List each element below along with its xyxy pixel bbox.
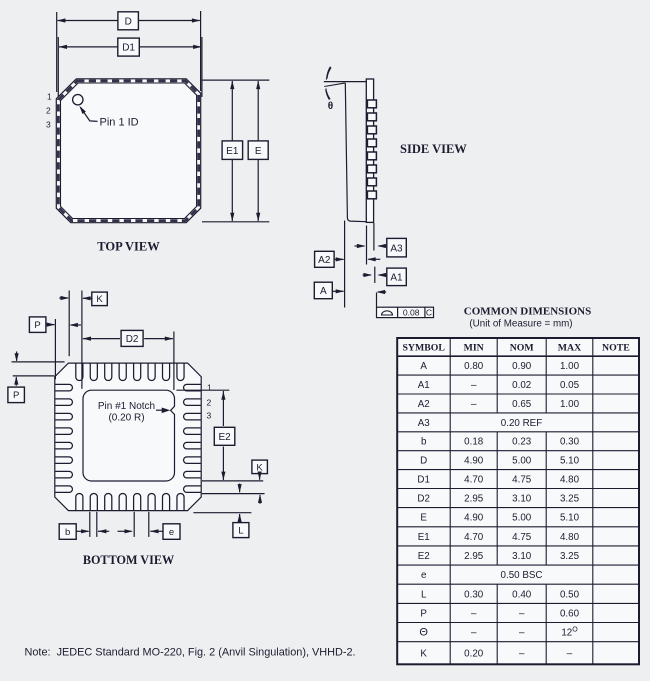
svg-text:e: e — [421, 570, 427, 581]
svg-text:3.25: 3.25 — [560, 551, 580, 562]
svg-text:A2: A2 — [418, 399, 430, 410]
svg-text:0.20 REF: 0.20 REF — [501, 418, 542, 429]
svg-text:0.30: 0.30 — [560, 437, 580, 448]
svg-text:–: – — [471, 399, 477, 410]
svg-text:1: 1 — [207, 383, 212, 393]
svg-text:4.80: 4.80 — [560, 475, 580, 486]
svg-text:K: K — [420, 649, 427, 660]
svg-text:5.10: 5.10 — [560, 513, 580, 524]
svg-text:–: – — [519, 649, 525, 660]
svg-text:SIDE VIEW: SIDE VIEW — [400, 142, 467, 156]
svg-text:1: 1 — [47, 92, 52, 102]
svg-text:L: L — [238, 526, 243, 537]
svg-text:A1: A1 — [390, 272, 403, 283]
svg-text:0.65: 0.65 — [512, 399, 532, 410]
svg-text:D2: D2 — [417, 494, 430, 505]
svg-text:4.70: 4.70 — [464, 475, 484, 486]
svg-text:A1: A1 — [418, 380, 430, 391]
svg-text:E2: E2 — [418, 551, 430, 562]
svg-text:4.90: 4.90 — [464, 456, 484, 467]
svg-text:Pin 1 ID: Pin 1 ID — [100, 117, 139, 129]
svg-text:TOP VIEW: TOP VIEW — [97, 240, 160, 254]
svg-text:0.02: 0.02 — [512, 380, 531, 391]
svg-text:0.30: 0.30 — [464, 589, 484, 600]
svg-text:BOTTOM VIEW: BOTTOM VIEW — [83, 553, 174, 567]
svg-text:A: A — [420, 361, 427, 372]
svg-text:2: 2 — [207, 398, 212, 408]
svg-text:E2: E2 — [218, 432, 231, 443]
svg-text:L: L — [421, 589, 427, 600]
svg-text:0.18: 0.18 — [464, 437, 484, 448]
svg-text:0.20: 0.20 — [464, 649, 484, 660]
svg-text:D: D — [125, 16, 132, 27]
svg-text:3: 3 — [46, 120, 51, 130]
svg-text:MIN: MIN — [464, 343, 484, 354]
svg-text:–: – — [519, 628, 525, 639]
svg-text:0.50: 0.50 — [560, 589, 580, 600]
svg-text:(Unit of Measure = mm): (Unit of Measure = mm) — [469, 319, 572, 330]
svg-text:3.10: 3.10 — [512, 494, 532, 505]
svg-text:–: – — [471, 380, 477, 391]
svg-text:b: b — [65, 527, 70, 538]
svg-text:COMMON DIMENSIONS: COMMON DIMENSIONS — [464, 306, 591, 318]
svg-text:3: 3 — [207, 411, 212, 421]
svg-text:5.10: 5.10 — [560, 456, 580, 467]
svg-text:D: D — [420, 456, 427, 467]
svg-text:e: e — [169, 527, 174, 538]
svg-text:E1: E1 — [226, 146, 239, 157]
svg-text:SYMBOL: SYMBOL — [402, 343, 445, 354]
svg-text:Pin #1 Notch: Pin #1 Notch — [98, 401, 155, 412]
svg-text:Θ: Θ — [419, 627, 428, 639]
svg-text:4.70: 4.70 — [464, 532, 484, 543]
svg-text:C: C — [426, 308, 432, 318]
svg-text:P: P — [34, 320, 40, 331]
svg-text:0.40: 0.40 — [512, 589, 532, 600]
svg-text:NOTE: NOTE — [602, 343, 630, 354]
svg-text:3.25: 3.25 — [560, 494, 580, 505]
svg-text:0.60: 0.60 — [560, 609, 580, 620]
svg-text:A2: A2 — [318, 255, 331, 266]
svg-text:A: A — [320, 286, 327, 297]
svg-text:K: K — [96, 294, 103, 305]
svg-text:4.75: 4.75 — [512, 475, 532, 486]
svg-text:–: – — [471, 609, 477, 620]
svg-text:E: E — [255, 146, 262, 157]
svg-text:θ: θ — [328, 101, 333, 112]
svg-text:MAX: MAX — [558, 343, 581, 354]
svg-text:0.80: 0.80 — [464, 361, 484, 372]
svg-text:A3: A3 — [418, 418, 431, 429]
svg-text:NOM: NOM — [510, 343, 534, 354]
svg-text:1.00: 1.00 — [560, 399, 580, 410]
svg-text:4.75: 4.75 — [512, 532, 532, 543]
svg-text:1.00: 1.00 — [560, 361, 580, 372]
svg-text:4.90: 4.90 — [464, 513, 484, 524]
svg-text:–: – — [471, 628, 477, 639]
svg-text:E1: E1 — [418, 532, 430, 543]
svg-text:0.50 BSC: 0.50 BSC — [501, 570, 543, 581]
svg-text:b: b — [421, 437, 427, 448]
svg-text:5.00: 5.00 — [512, 456, 532, 467]
svg-text:P: P — [13, 390, 19, 401]
svg-text:2.95: 2.95 — [464, 494, 484, 505]
svg-text:–: – — [519, 609, 525, 620]
svg-text:D1: D1 — [122, 43, 135, 54]
svg-text:2.95: 2.95 — [464, 551, 484, 562]
svg-text:(0.20 R): (0.20 R) — [108, 413, 144, 424]
svg-text:0.05: 0.05 — [560, 380, 580, 391]
svg-text:2: 2 — [46, 106, 51, 116]
svg-text:Note: JEDEC Standard MO-220,: Note: JEDEC Standard MO-220, Fig. 2 (Anv… — [25, 647, 356, 659]
svg-text:4.80: 4.80 — [560, 532, 580, 543]
svg-text:5.00: 5.00 — [512, 513, 532, 524]
svg-text:D1: D1 — [417, 475, 430, 486]
svg-text:E: E — [420, 513, 427, 524]
svg-text:–: – — [567, 649, 573, 660]
svg-text:P: P — [420, 609, 427, 620]
svg-text:0.90: 0.90 — [512, 361, 532, 372]
svg-text:0.23: 0.23 — [512, 437, 532, 448]
svg-text:D2: D2 — [126, 334, 139, 345]
svg-text:0.08: 0.08 — [403, 308, 420, 318]
svg-text:A3: A3 — [390, 243, 403, 254]
svg-text:3.10: 3.10 — [512, 551, 532, 562]
